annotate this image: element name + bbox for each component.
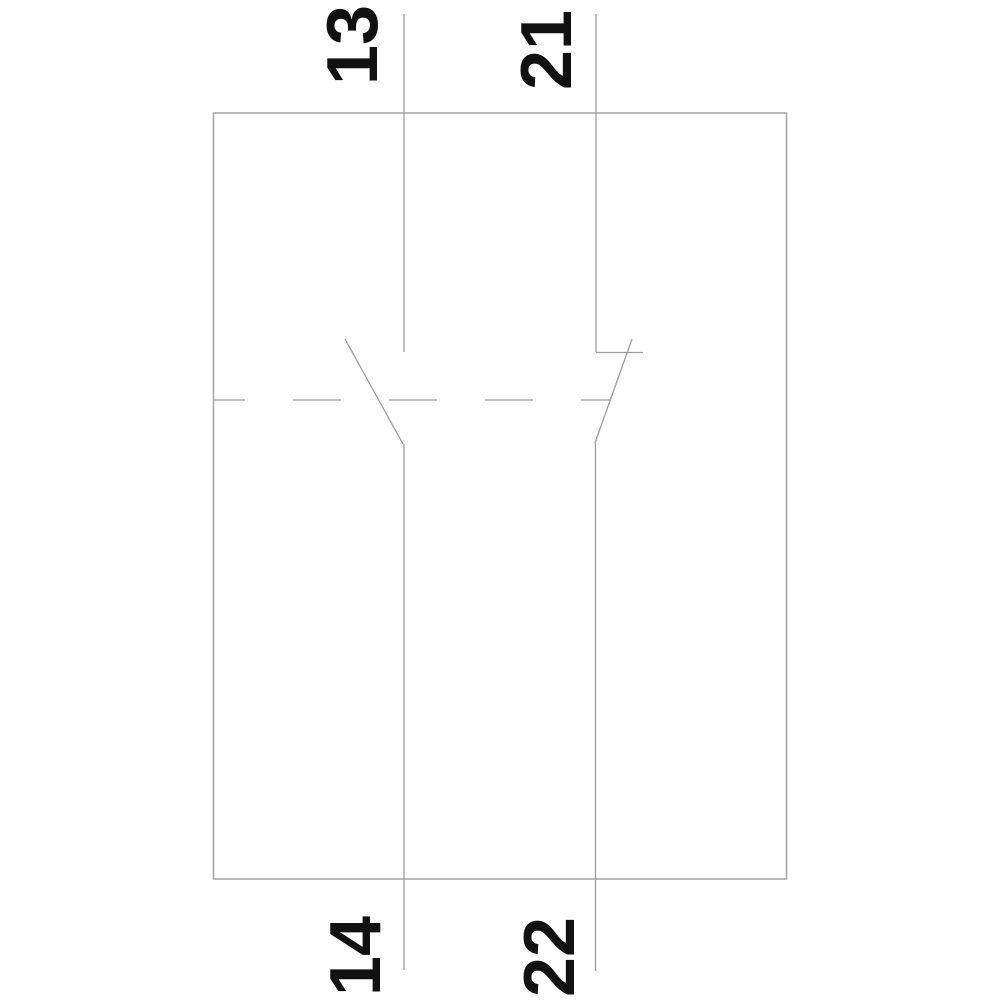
nc-contact-symbol: [595, 14, 643, 971]
no-moving-contact-line: [345, 339, 403, 444]
terminal-label-14: 14: [316, 916, 396, 996]
contact-block-wiring-diagram: 13 21 14 22: [0, 0, 1000, 1000]
nc-moving-contact-line: [595, 339, 632, 443]
terminal-label-22: 22: [510, 917, 590, 997]
terminal-label-21: 21: [507, 10, 587, 90]
schematic-canvas: 13 21 14 22: [0, 0, 1000, 1000]
terminal-label-13: 13: [313, 5, 393, 85]
no-contact-symbol: [345, 14, 404, 970]
enclosure-outline: [214, 113, 787, 879]
